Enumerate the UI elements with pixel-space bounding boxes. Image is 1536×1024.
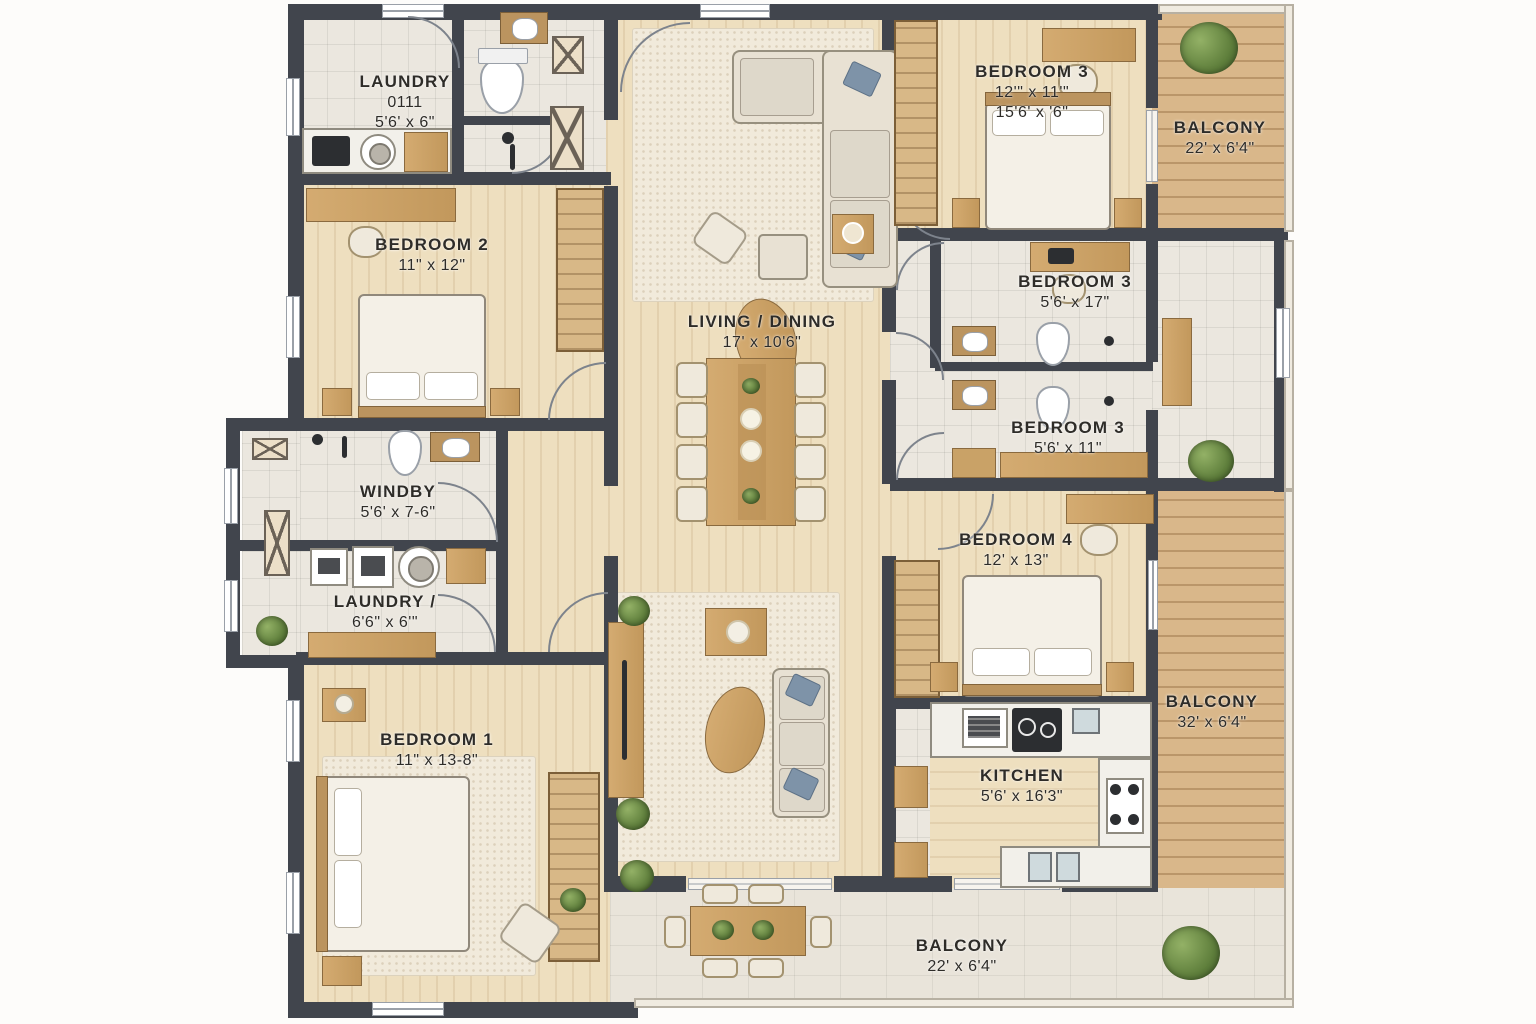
window-top-2 <box>700 4 770 18</box>
cabinet <box>952 448 996 478</box>
laundry-cabinet <box>446 548 486 584</box>
sofa-cushion <box>830 130 890 198</box>
wall-living-bottom-2 <box>834 876 896 892</box>
decor-bowl <box>842 222 864 244</box>
window-left-1 <box>286 78 300 136</box>
dinner-plate <box>740 408 762 430</box>
tv <box>622 660 627 760</box>
nightstand <box>952 198 980 228</box>
label-balcony-top: BALCONY 22' x 6'4" <box>1174 118 1266 158</box>
burner <box>1110 814 1121 825</box>
outdoor-chair <box>748 884 784 904</box>
window-entry-2 <box>224 580 238 632</box>
burner <box>1040 722 1056 738</box>
floor-plan: LAUNDRY 0111 5'6' x 6" BEDROOM 2 11" x 1… <box>0 0 1536 1024</box>
window-left-4 <box>286 872 300 934</box>
wall-left-upper <box>288 4 304 428</box>
wall-bottom <box>288 1002 638 1018</box>
plant-icon <box>618 596 650 626</box>
label-bedroom2: BEDROOM 2 11" x 12" <box>375 235 489 275</box>
label-windby: WINDBY 5'6' x 7-6" <box>360 482 436 522</box>
balcony-right-floor <box>1152 490 1284 892</box>
label-laundry-top: LAUNDRY 0111 5'6' x 6" <box>360 72 451 132</box>
nightstand <box>322 388 352 416</box>
plant-icon <box>256 616 288 646</box>
bed-pillow <box>1034 648 1092 676</box>
washing-machine-icon <box>398 546 440 588</box>
bath-cabinet <box>1162 318 1192 406</box>
table-plant-icon <box>712 920 734 940</box>
nightstand <box>490 388 520 416</box>
wall-rightmid-2 <box>1146 410 1158 490</box>
ottoman-square <box>758 234 808 280</box>
desk <box>1042 28 1136 62</box>
bed-pillow <box>972 648 1030 676</box>
bed-pillow <box>334 860 362 928</box>
table-greenery-icon <box>742 378 760 394</box>
sofa-cushion <box>740 58 814 116</box>
rail-top <box>1158 4 1294 14</box>
shower-head-icon <box>1104 336 1114 346</box>
washing-machine-icon <box>360 134 396 170</box>
burner <box>1110 784 1121 795</box>
shower-rail <box>342 436 347 458</box>
wall-rightmid-1 <box>1146 240 1158 362</box>
label-bedroom4: BEDROOM 4 12' x 13" <box>959 530 1073 570</box>
desk <box>1030 242 1130 272</box>
headboard <box>358 406 486 418</box>
desk-chair <box>1080 524 1118 556</box>
label-living: LIVING / DINING 17' x 10'6" <box>688 312 836 352</box>
label-bedroom1: BEDROOM 1 11" x 13-8" <box>380 730 494 770</box>
microwave-grill <box>968 716 1000 738</box>
wall-living-left-1 <box>604 12 618 120</box>
plant-icon <box>560 888 586 912</box>
rail-bottom <box>634 998 1294 1008</box>
framed-unit-inner <box>361 556 385 576</box>
wardrobe <box>894 20 938 226</box>
dining-chair <box>794 402 826 438</box>
wall-living-right-3 <box>882 380 896 484</box>
kitchen-cabinet <box>894 766 928 808</box>
window-entry-1 <box>224 468 238 524</box>
dining-chair <box>794 444 826 480</box>
laundry-cabinet <box>404 132 448 172</box>
outdoor-chair <box>748 958 784 978</box>
bed <box>962 575 1102 697</box>
table-greenery-icon <box>742 488 760 504</box>
monitor-icon <box>1048 248 1074 264</box>
kitchen-sink-basin <box>1056 852 1080 882</box>
sofa-cushion <box>779 722 825 766</box>
wall-b3mid-divider <box>935 362 1153 371</box>
headboard <box>962 684 1102 696</box>
dining-chair <box>676 444 708 480</box>
sink-basin <box>442 438 470 458</box>
burner <box>1018 718 1036 736</box>
shower-head-icon <box>1104 396 1114 406</box>
table-plant-icon <box>752 920 774 940</box>
wall-laundry-bath <box>452 12 464 180</box>
nightstand <box>1114 198 1142 228</box>
rail-topright <box>1284 4 1294 232</box>
entry-cabinet <box>252 438 288 460</box>
label-laundry-left: LAUNDRY / 6'6" x 6'" <box>334 592 436 632</box>
wall-hall-left <box>496 428 508 656</box>
dining-chair <box>676 402 708 438</box>
wall-living-left-3 <box>604 428 618 486</box>
headboard <box>316 776 328 952</box>
nightstand <box>930 662 958 692</box>
outdoor-table <box>690 906 806 956</box>
sink-basin <box>962 386 988 406</box>
rail-right <box>1284 490 1294 1008</box>
wall-living-left-2 <box>604 186 618 428</box>
kitchen-sink-small <box>1072 708 1100 734</box>
nightstand <box>322 956 362 986</box>
plant-icon <box>1180 22 1238 74</box>
label-bedroom3-top: BEDROOM 3 12'" x 11'" 15'6' x '6" <box>975 62 1089 122</box>
desk <box>306 188 456 222</box>
slider-bedroom3-top <box>1146 110 1158 182</box>
shower-rail <box>510 144 515 170</box>
wardrobe <box>556 188 604 352</box>
plant-icon <box>1188 440 1234 482</box>
closet-cabinet <box>550 106 584 170</box>
framed-unit-inner <box>318 558 340 574</box>
window-left-2 <box>286 296 300 358</box>
burner <box>1128 814 1139 825</box>
wall-balctop-2 <box>1146 184 1158 232</box>
window-bedroom4 <box>1148 560 1158 630</box>
nightstand <box>1106 662 1134 692</box>
shower-head-icon <box>312 434 323 445</box>
bed-pillow <box>424 372 478 400</box>
shower-divider <box>460 116 552 125</box>
dining-chair <box>794 486 826 522</box>
dining-chair <box>676 362 708 398</box>
decor-vase <box>726 620 750 644</box>
kitchen-cabinet <box>894 842 928 878</box>
plant-icon <box>616 798 650 830</box>
lamp-icon <box>334 694 354 714</box>
window-bottom-1 <box>372 1002 444 1016</box>
closet-cabinet <box>552 36 584 74</box>
label-bedroom3-mid: BEDROOM 3 5'6' x 17" <box>1018 272 1132 312</box>
laundry-sink <box>312 136 350 166</box>
shower-head-icon <box>502 132 514 144</box>
toilet-tank <box>478 48 528 64</box>
window-right-1 <box>1276 308 1290 378</box>
outdoor-chair <box>702 958 738 978</box>
sink-basin <box>962 332 988 352</box>
window-left-3 <box>286 700 300 762</box>
dining-chair <box>794 362 826 398</box>
plant-icon <box>1162 926 1220 980</box>
bed-pillow <box>366 372 420 400</box>
dining-chair <box>676 486 708 522</box>
sink-basin <box>512 18 538 40</box>
bed-pillow <box>334 788 362 856</box>
laundry-counter-wood <box>308 632 436 658</box>
dinner-plate <box>740 440 762 462</box>
wall-kitchen-bottom-1 <box>890 876 952 892</box>
kitchen-sink-basin <box>1028 852 1052 882</box>
label-balcony-bottom: BALCONY 22' x 6'4" <box>916 936 1008 976</box>
wall-balctop-1 <box>1146 12 1158 108</box>
plant-icon <box>620 860 654 892</box>
outdoor-chair <box>664 916 686 948</box>
entry-cabinet <box>264 510 290 576</box>
label-bedroom3-low: BEDROOM 3 5'6' x 11" <box>1011 418 1125 458</box>
burner <box>1128 784 1139 795</box>
outdoor-chair <box>810 916 832 948</box>
wall-bedroom4-top <box>890 478 1288 491</box>
desk <box>1066 494 1154 524</box>
label-balcony-right: BALCONY 32' x 6'4" <box>1166 692 1258 732</box>
label-kitchen: KITCHEN 5'6' x 16'3" <box>980 766 1064 806</box>
outdoor-chair <box>702 884 738 904</box>
